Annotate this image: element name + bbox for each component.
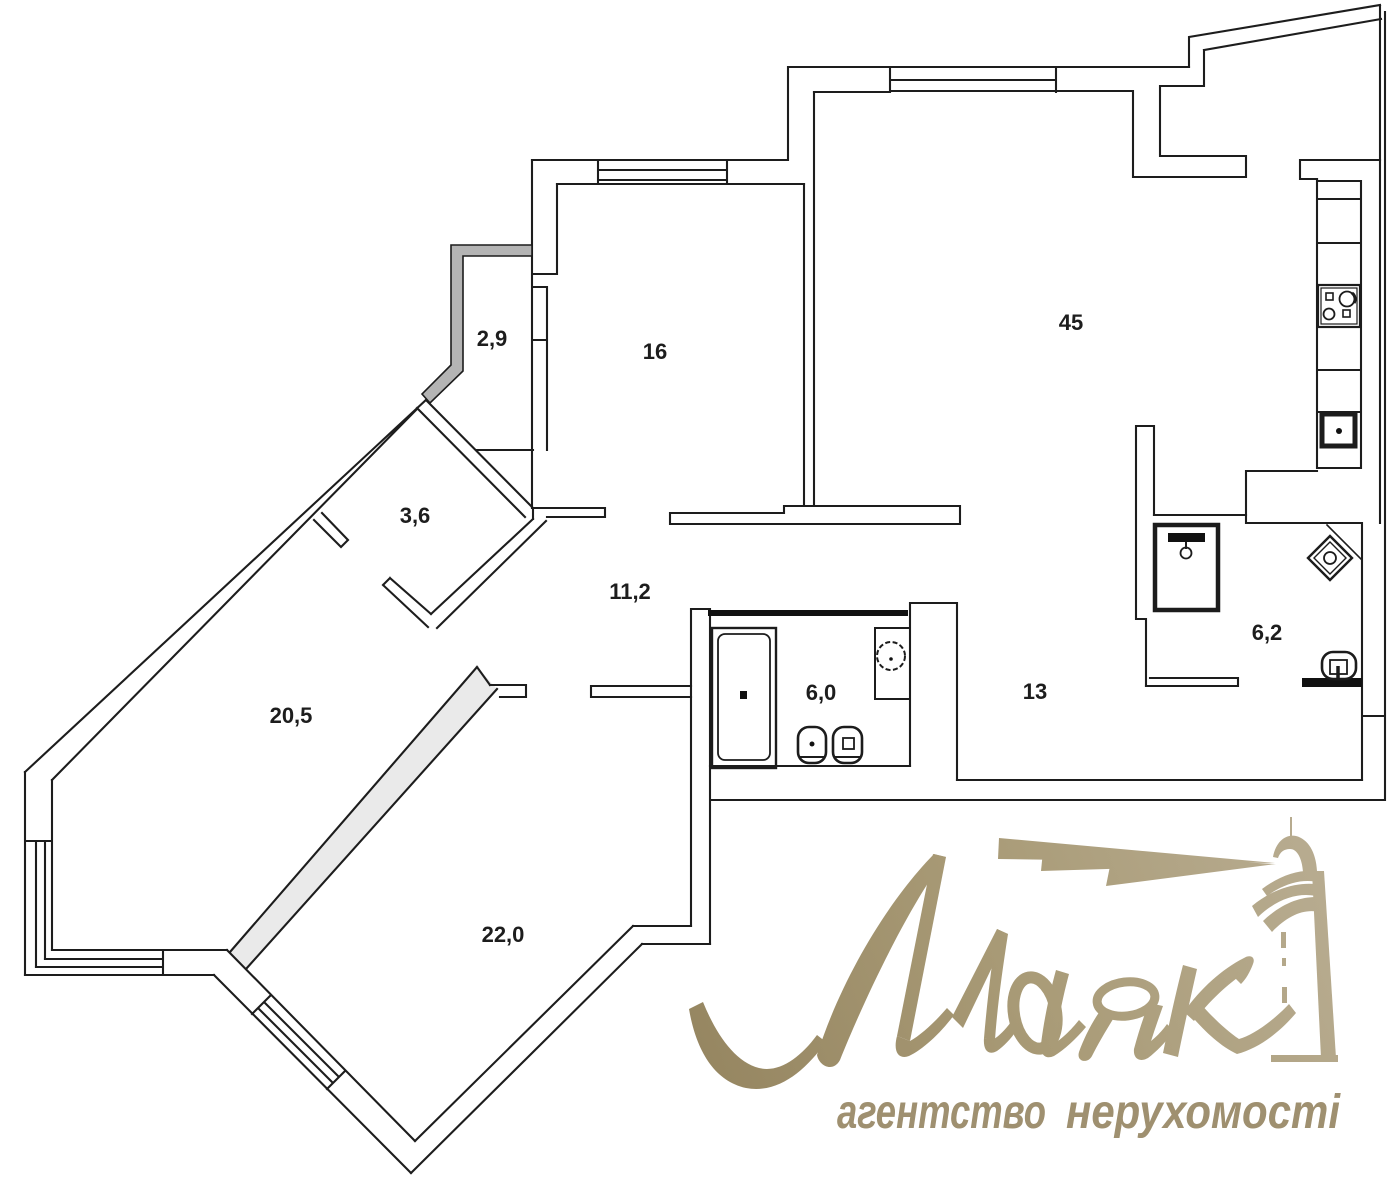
svg-text:6,0: 6,0 (806, 680, 837, 705)
svg-text:2,9: 2,9 (477, 326, 508, 351)
svg-text:45: 45 (1059, 310, 1083, 335)
svg-text:11,2: 11,2 (609, 579, 651, 604)
svg-text:20,5: 20,5 (270, 703, 313, 728)
svg-text:22,0: 22,0 (482, 922, 525, 947)
svg-text:16: 16 (643, 339, 667, 364)
svg-text:3,6: 3,6 (400, 503, 431, 528)
svg-text:нерухомості: нерухомості (1066, 1086, 1341, 1139)
svg-text:6,2: 6,2 (1252, 620, 1283, 645)
svg-text:13: 13 (1023, 679, 1047, 704)
svg-text:агентство: агентство (837, 1086, 1046, 1139)
